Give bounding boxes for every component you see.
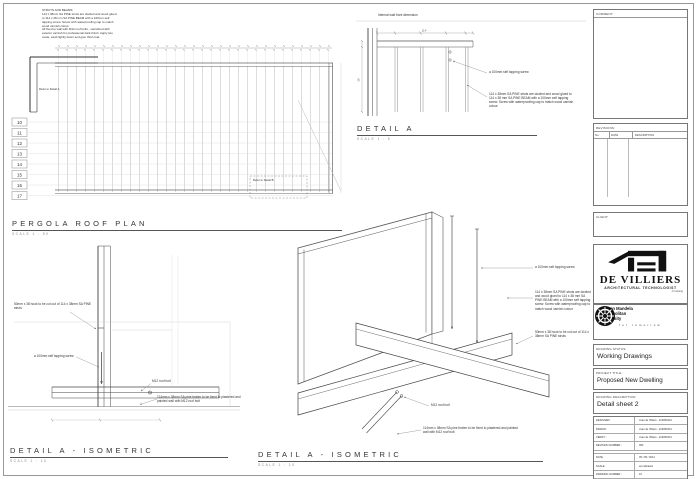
iso-mid-scale: SCALE 1 : 10 bbox=[258, 463, 543, 467]
project-title-box: PROJECT TITLE: Proposed New Dwelling bbox=[593, 368, 688, 390]
detail-a-strut-annotation: 114 x 38mm SA PINE struts are dowled and… bbox=[489, 92, 577, 109]
field-row-drawing-number: DRAWING NUMBER : 10 bbox=[594, 471, 687, 479]
de-villiers-house-logo-icon bbox=[596, 247, 686, 273]
detail-a-wall-label: Internal wall front dimension bbox=[378, 13, 450, 17]
field-row-revision-number: REVISION NUMBER : 000 bbox=[594, 442, 687, 450]
field-row-scale: SCALE : as indicated bbox=[594, 462, 687, 470]
iso-mid-screw-annotation: a 100mm self tapping screw bbox=[535, 265, 590, 269]
iso-mid-bolt-annotation: M12 roof bolt bbox=[431, 403, 471, 407]
pergola-roof-plan-title: PERGOLA ROOF PLAN bbox=[12, 219, 342, 228]
firm-logo-box: DE VILLIERS ARCHITECTURAL TECHNOLOGIST i… bbox=[593, 244, 688, 304]
title-underline bbox=[258, 461, 543, 462]
detail-a-screw-annotation: a 100mm self tapping screw bbox=[489, 70, 574, 74]
iso-mid-title: DETAIL A - ISOMETRIC bbox=[258, 450, 543, 459]
nmmu-emblem-icon bbox=[594, 305, 616, 327]
iso-left-title-block: DETAIL A - ISOMETRIC SCALE 1 : 10 bbox=[10, 446, 228, 463]
university-box: Nelson Mandela Metropolitan University f… bbox=[593, 304, 688, 340]
comment-box: COMMENT: bbox=[593, 9, 688, 119]
project-title-value: Proposed New Dwelling bbox=[594, 376, 687, 386]
iso-mid-title-block: DETAIL A - ISOMETRIC SCALE 1 : 10 bbox=[258, 450, 543, 467]
detail-a-title: DETAIL A bbox=[357, 124, 537, 133]
detail-a-dim-114: 114 bbox=[422, 29, 427, 33]
title-block-column: COMMENT: REVISIONS: No. DATE DESCRIPTION… bbox=[593, 8, 690, 473]
detail-a-dim-38: 38 bbox=[357, 78, 361, 82]
drawing-description-value: Detail sheet 2 bbox=[594, 400, 687, 410]
svg-text:17: 17 bbox=[17, 194, 23, 199]
field-row-date: DATE : 05 / 05 / 2014 bbox=[594, 454, 687, 462]
revisions-col-date: DATE bbox=[610, 132, 633, 138]
iso-mid-timber-annotation: 114mm x 38mm SA pine timber to be fixed … bbox=[423, 426, 523, 434]
revisions-empty-rows bbox=[594, 139, 687, 220]
firm-tagline: in training bbox=[594, 290, 687, 293]
firm-name: DE VILLIERS bbox=[594, 274, 687, 286]
iso-left-hook-annotation: 50mm x 38 hook to be cut out of 114 x 38… bbox=[14, 302, 92, 310]
title-underline bbox=[12, 230, 342, 231]
revisions-col-no: No. bbox=[594, 132, 610, 138]
iso-left-scale: SCALE 1 : 10 bbox=[10, 459, 228, 463]
title-underline bbox=[10, 457, 228, 458]
iso-left-timber-annotation: 114mm x 38mm SA pine timber to be fixed … bbox=[157, 395, 247, 403]
revisions-box: REVISIONS: No. DATE DESCRIPTION bbox=[593, 123, 688, 206]
drawing-status-box: DRAWING STATUS: Working Drawings bbox=[593, 344, 688, 366]
svg-text:11: 11 bbox=[17, 131, 22, 136]
info-fields-box: DESIGNED : Juan de Villiers - 213053413 … bbox=[593, 416, 688, 479]
drawing-sheet: 10 11 12 13 14 15 16 17 bbox=[0, 0, 697, 479]
revisions-col-description: DESCRIPTION bbox=[633, 132, 687, 138]
struts-and-beams-note: STRUTS AND BEAMS: 114 x 38mm SA PINE str… bbox=[42, 9, 118, 40]
client-box: CLIENT: bbox=[593, 212, 688, 237]
field-row-designed: DESIGNED : Juan de Villiers - 213053413 bbox=[594, 417, 687, 425]
detail-a-scale: SCALE 1 : 5 bbox=[357, 137, 537, 141]
iso-left-title: DETAIL A - ISOMETRIC bbox=[10, 446, 228, 455]
svg-text:15: 15 bbox=[17, 173, 23, 178]
detail-a-title-block: DETAIL A SCALE 1 : 5 bbox=[357, 124, 537, 141]
svg-text:16: 16 bbox=[17, 183, 23, 188]
refer-detail-b-label: Refer to Detail B bbox=[253, 179, 303, 183]
svg-text:14: 14 bbox=[17, 162, 23, 167]
field-row-verify: VERIFY : Juan de Villiers - 213053413 bbox=[594, 434, 687, 442]
svg-text:12: 12 bbox=[17, 141, 23, 146]
refer-detail-a-label: Refer to Detail A bbox=[39, 88, 81, 92]
svg-text:13: 13 bbox=[17, 152, 23, 157]
revisions-header: No. DATE DESCRIPTION bbox=[594, 131, 687, 139]
iso-left-bolt-annotation: M12 roof bolt bbox=[152, 379, 192, 383]
iso-middle-drawing bbox=[298, 212, 549, 434]
pergola-roof-plan-scale: SCALE 1 : 50 bbox=[12, 232, 342, 236]
drawing-description-box: DRAWING DESCRIPTION: Detail sheet 2 bbox=[593, 392, 688, 414]
iso-mid-strut-annotation: 114 x 38mm SA PINE struts are dowled and… bbox=[535, 290, 591, 311]
field-row-drawn: DRAWN : Juan de Villiers - 213053413 bbox=[594, 425, 687, 433]
pergola-roof-plan-title-block: PERGOLA ROOF PLAN SCALE 1 : 50 bbox=[12, 219, 342, 236]
svg-text:10: 10 bbox=[17, 120, 23, 125]
plan-grid-bubbles: 10 11 12 13 14 15 16 17 bbox=[12, 118, 27, 200]
iso-left-screw-annotation: a 100mm self tapping screw bbox=[34, 354, 94, 358]
pergola-roof-plan-drawing: 10 11 12 13 14 15 16 17 bbox=[12, 45, 341, 200]
comment-label: COMMENT: bbox=[594, 10, 687, 18]
client-label: CLIENT: bbox=[594, 213, 687, 220]
title-underline bbox=[357, 135, 537, 136]
iso-mid-hook-annotation: 50mm x 38 hook to be cut out of 114 x 38… bbox=[535, 330, 591, 338]
drawing-status-value: Working Drawings bbox=[594, 352, 687, 362]
